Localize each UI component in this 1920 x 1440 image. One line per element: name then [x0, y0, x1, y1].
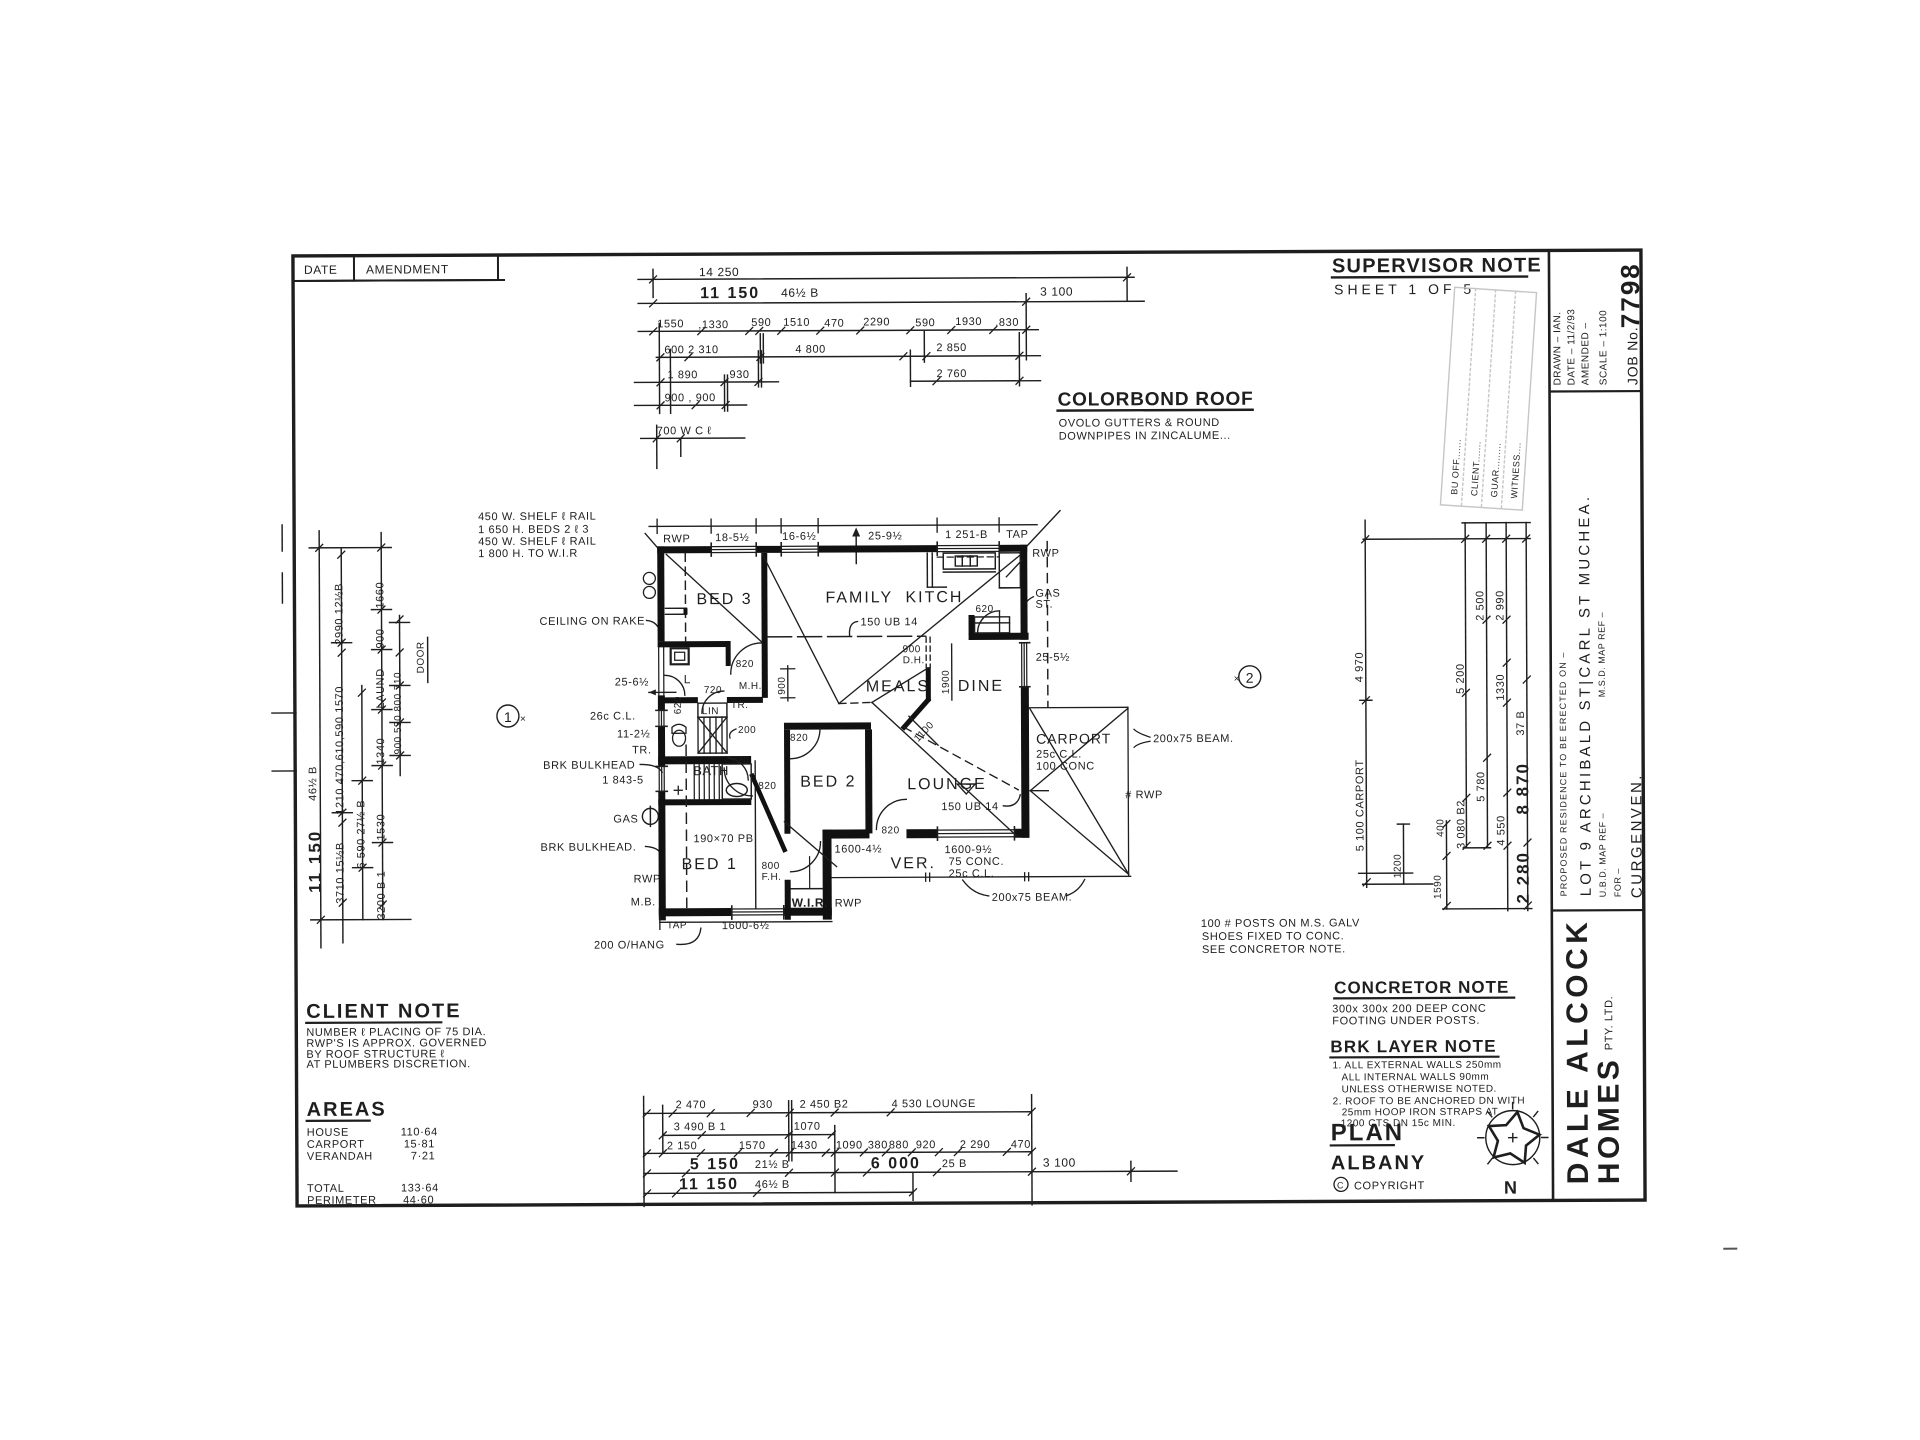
svg-text:LOT 9 ARCHIBALD ST|CARL ST M: LOT 9 ARCHIBALD ST|CARL ST MUCHEA. — [1576, 494, 1595, 897]
svg-text:2 150: 2 150 — [667, 1140, 698, 1152]
svg-text:1590: 1590 — [1433, 875, 1444, 899]
svg-text:1430: 1430 — [791, 1140, 818, 1152]
svg-text:DINE: DINE — [958, 678, 1004, 695]
svg-text:3 080 B2: 3 080 B2 — [1455, 800, 1467, 849]
svg-text:200x75 BEAM.: 200x75 BEAM. — [992, 892, 1073, 904]
svg-text:3200 B 1: 3200 B 1 — [376, 871, 388, 920]
svg-text:25c C.L.: 25c C.L. — [1036, 749, 1082, 761]
svg-text:D.H.: D.H. — [903, 655, 925, 666]
svg-text:PTY. LTD.: PTY. LTD. — [1603, 996, 1615, 1051]
svg-text:2 850: 2 850 — [936, 342, 967, 354]
svg-text:2 280: 2 280 — [1514, 851, 1533, 904]
svg-text:25c C.L.: 25c C.L. — [949, 868, 995, 880]
svg-text:5 780: 5 780 — [1475, 771, 1487, 802]
svg-text:2 500: 2 500 — [1474, 590, 1486, 621]
svg-text:GAS: GAS — [613, 813, 638, 825]
svg-text:BRK BULKHEAD: BRK BULKHEAD — [543, 759, 635, 771]
svg-text:930: 930 — [753, 1099, 773, 1111]
svg-text:×: × — [520, 714, 526, 725]
svg-text:5 150: 5 150 — [690, 1156, 740, 1173]
svg-text:11 150: 11 150 — [305, 830, 324, 893]
svg-text:ST.: ST. — [1035, 599, 1053, 611]
svg-text:16-6½: 16-6½ — [782, 531, 816, 543]
svg-text:2 470: 2 470 — [676, 1099, 707, 1111]
svg-text:2 450 B2: 2 450 B2 — [800, 1099, 849, 1111]
svg-text:JOB No.: JOB No. — [1624, 327, 1640, 386]
svg-text:900 , 900: 900 , 900 — [665, 392, 716, 404]
svg-text:HOUSE: HOUSE — [307, 1127, 349, 1139]
svg-text:TAP: TAP — [1006, 529, 1028, 541]
svg-text:RWP: RWP — [634, 873, 661, 885]
svg-text:SCALE – 1:100: SCALE – 1:100 — [1598, 310, 1609, 385]
svg-text:CLIENT NOTE: CLIENT NOTE — [306, 1000, 461, 1023]
svg-text:KITCH: KITCH — [905, 589, 963, 606]
svg-text:1530: 1530 — [375, 814, 387, 841]
svg-text:100 # POSTS ON M.S. GALV: 100 # POSTS ON M.S. GALV — [1201, 917, 1360, 930]
svg-text:26c C.L.: 26c C.L. — [590, 710, 636, 722]
svg-text:900: 900 — [777, 677, 788, 695]
svg-text:44·60: 44·60 — [403, 1194, 434, 1206]
svg-text:SUPERVISOR NOTE: SUPERVISOR NOTE — [1332, 254, 1542, 277]
svg-text:1900: 1900 — [941, 670, 952, 694]
svg-text:BRK LAYER NOTE: BRK LAYER NOTE — [1330, 1037, 1496, 1057]
svg-text:1340: 1340 — [375, 738, 387, 765]
svg-text:CONCRETOR NOTE: CONCRETOR NOTE — [1334, 978, 1509, 998]
svg-text:1070: 1070 — [794, 1121, 821, 1133]
svg-text:4 530 LOUNGE: 4 530 LOUNGE — [892, 1098, 976, 1110]
svg-text:1 890: 1 890 — [667, 369, 698, 381]
svg-text:SEE CONCRETOR NOTE.: SEE CONCRETOR NOTE. — [1202, 943, 1346, 956]
svg-text:800: 800 — [762, 861, 780, 872]
svg-text:1510: 1510 — [783, 317, 810, 329]
svg-text:1600-6½: 1600-6½ — [722, 920, 770, 932]
svg-text:,830: ,830 — [995, 317, 1019, 329]
svg-text:AREAS: AREAS — [307, 1099, 387, 1121]
svg-text:1 650 H. BEDS 2 ℓ 3: 1 650 H. BEDS 2 ℓ 3 — [478, 524, 589, 536]
svg-text:COPYRIGHT: COPYRIGHT — [1354, 1180, 1425, 1192]
svg-text:×: × — [1234, 674, 1240, 685]
svg-text:BED 2: BED 2 — [800, 773, 856, 790]
svg-text:TAP: TAP — [667, 920, 687, 931]
svg-text:N: N — [1504, 1178, 1518, 1198]
svg-text:6 590 27½ B: 6 590 27½ B — [355, 800, 367, 869]
svg-text:720: 720 — [731, 755, 749, 766]
svg-text:1: 1 — [504, 709, 513, 725]
svg-text:25-6½: 25-6½ — [615, 676, 649, 688]
svg-text:820: 820 — [736, 659, 754, 670]
svg-text:150 UB 14: 150 UB 14 — [861, 616, 918, 628]
svg-text:CURGENVEN.: CURGENVEN. — [1628, 773, 1646, 898]
svg-text:880: 880 — [889, 1139, 909, 1151]
svg-text:L: L — [684, 672, 691, 686]
svg-text:2: 2 — [1246, 670, 1255, 686]
svg-text:PLAN: PLAN — [1331, 1119, 1404, 1146]
svg-text:PERIMETER: PERIMETER — [307, 1195, 377, 1207]
svg-text:FOR –: FOR – — [1613, 868, 1623, 897]
svg-text:1 800 H. TO W.I.R: 1 800 H. TO W.I.R — [478, 548, 578, 560]
svg-text:200 O/HANG: 200 O/HANG — [594, 939, 665, 951]
svg-text:SHOES FIXED TO CONC.: SHOES FIXED TO CONC. — [1202, 930, 1344, 943]
svg-text:3 100: 3 100 — [1043, 1156, 1076, 1170]
svg-text:F.H.: F.H. — [762, 872, 782, 883]
svg-text:620: 620 — [673, 696, 684, 714]
svg-text:RWP: RWP — [835, 897, 862, 909]
svg-text:450 W. SHELF ℓ RAIL: 450 W. SHELF ℓ RAIL — [478, 511, 596, 524]
svg-text:DALE ALCOCK: DALE ALCOCK — [1561, 918, 1595, 1185]
svg-text:M.S.D. MAP REF –: M.S.D. MAP REF – — [1596, 612, 1606, 697]
svg-text:1570: 1570 — [739, 1140, 766, 1152]
svg-text:7·21: 7·21 — [411, 1150, 435, 1162]
svg-text:380: 380 — [868, 1139, 888, 1151]
svg-text:2. ROOF TO BE ANCHORED DN WITH: 2. ROOF TO BE ANCHORED DN WITH — [1333, 1096, 1525, 1108]
svg-text:590: 590 — [751, 317, 771, 329]
svg-text:BRK BULKHEAD.: BRK BULKHEAD. — [540, 841, 636, 853]
svg-text:UNLESS OTHERWISE NOTED.: UNLESS OTHERWISE NOTED. — [1342, 1084, 1497, 1096]
svg-text:46½ B: 46½ B — [781, 286, 819, 300]
svg-text:4 550: 4 550 — [1495, 815, 1507, 846]
svg-text:DOWNPIPES IN ZINCALUME...: DOWNPIPES IN ZINCALUME... — [1059, 430, 1231, 443]
svg-text:CARPORT: CARPORT — [307, 1139, 365, 1151]
svg-text:1 251-B: 1 251-B — [945, 529, 988, 541]
svg-text:5 200: 5 200 — [1455, 663, 1467, 694]
svg-text:25mm HOOP IRON STRAPS AT: 25mm HOOP IRON STRAPS AT — [1342, 1107, 1499, 1119]
svg-text:TR.: TR. — [632, 744, 652, 756]
svg-text:FOOTING UNDER POSTS.: FOOTING UNDER POSTS. — [1332, 1015, 1480, 1028]
svg-text:11 150: 11 150 — [700, 285, 760, 302]
svg-text:2 290: 2 290 — [960, 1139, 991, 1151]
svg-text:46½ B: 46½ B — [755, 1179, 790, 1191]
svg-text:3 490 B 1: 3 490 B 1 — [674, 1121, 727, 1133]
svg-text:190×70 PB: 190×70 PB — [693, 833, 753, 845]
svg-text:BATH: BATH — [693, 763, 729, 778]
svg-text:5 100 CARPORT: 5 100 CARPORT — [1354, 759, 1366, 851]
svg-text:820: 820 — [790, 733, 808, 744]
svg-text:1930: 1930 — [955, 316, 982, 328]
svg-text:1550: 1550 — [657, 318, 684, 330]
svg-text:TR.: TR. — [731, 700, 749, 711]
svg-text:300x 300x 200 DEEP CONC: 300x 300x 200 DEEP CONC — [1332, 1003, 1486, 1016]
svg-text:25 B: 25 B — [942, 1158, 967, 1170]
svg-text:U.B.D. MAP REF –: U.B.D. MAP REF – — [1597, 813, 1607, 897]
svg-text:2990 12½B: 2990 12½B — [333, 583, 345, 645]
svg-text:3 100: 3 100 — [1040, 285, 1073, 299]
svg-text:75 CONC.: 75 CONC. — [949, 856, 1005, 868]
svg-text:25-9½: 25-9½ — [868, 530, 902, 542]
svg-text:LIN: LIN — [702, 706, 719, 717]
svg-text:7798: 7798 — [1615, 262, 1645, 328]
svg-text:MEALS: MEALS — [866, 678, 930, 695]
svg-text:470: 470 — [824, 318, 844, 330]
svg-text:DATE: DATE — [304, 263, 338, 277]
svg-text:ALL INTERNAL WALLS 90mm: ALL INTERNAL WALLS 90mm — [1342, 1072, 1490, 1084]
svg-text:BED 3: BED 3 — [696, 591, 752, 608]
svg-text:150 UB 14: 150 UB 14 — [941, 801, 998, 813]
svg-text:6 000: 6 000 — [871, 1155, 921, 1172]
svg-text:ALBANY: ALBANY — [1331, 1152, 1426, 1174]
svg-text:DATE – 11/2/93: DATE – 11/2/93 — [1566, 309, 1577, 386]
svg-text:W.I.R.: W.I.R. — [792, 896, 828, 910]
svg-text:900: 900 — [903, 644, 921, 655]
svg-text:M.H.: M.H. — [739, 681, 762, 692]
svg-text:590: 590 — [915, 317, 935, 329]
svg-text:820: 820 — [881, 825, 899, 836]
svg-text:200x75 BEAM.: 200x75 BEAM. — [1153, 733, 1234, 745]
svg-text:1 843-5: 1 843-5 — [602, 774, 644, 786]
svg-text:PROPOSED RESIDENCE TO BE ERECT: PROPOSED RESIDENCE TO BE ERECTED ON – — [1558, 651, 1569, 896]
svg-text:133·64: 133·64 — [401, 1182, 439, 1194]
svg-text:1090: 1090 — [836, 1139, 863, 1151]
svg-text:HOMES: HOMES — [1592, 1057, 1626, 1185]
svg-text:21½ B: 21½ B — [755, 1159, 790, 1171]
svg-text:AT PLUMBERS DISCRETION.: AT PLUMBERS DISCRETION. — [306, 1058, 470, 1071]
svg-text:VERANDAH: VERANDAH — [307, 1151, 373, 1163]
svg-text:3710 15½B: 3710 15½B — [334, 842, 346, 904]
svg-text:LAUND: LAUND — [375, 668, 387, 708]
svg-text:AMENDED –: AMENDED – — [1580, 322, 1591, 385]
svg-text:1600-9½: 1600-9½ — [945, 844, 993, 856]
svg-text:37 B: 37 B — [1515, 711, 1527, 736]
svg-text:920: 920 — [916, 1139, 936, 1151]
svg-text:18-5½: 18-5½ — [715, 532, 749, 544]
svg-text:COLORBOND ROOF: COLORBOND ROOF — [1058, 389, 1254, 411]
svg-text:4 970: 4 970 — [1354, 652, 1366, 683]
svg-text:820: 820 — [758, 781, 776, 792]
svg-text:2 760: 2 760 — [936, 368, 967, 380]
svg-text:1. ALL EXTERNAL WALLS 250mm: 1. ALL EXTERNAL WALLS 250mm — [1332, 1060, 1501, 1072]
svg-text:1200: 1200 — [1393, 854, 1404, 878]
svg-text:450 W. SHELF ℓ RAIL: 450 W. SHELF ℓ RAIL — [478, 536, 596, 549]
svg-text:4 800: 4 800 — [795, 344, 826, 356]
svg-text:VER.: VER. — [891, 855, 936, 872]
svg-text:CEILING ON RAKE: CEILING ON RAKE — [540, 615, 646, 627]
svg-text:C: C — [1337, 1180, 1344, 1190]
svg-text:900 530 800 710: 900 530 800 710 — [393, 672, 404, 755]
svg-text:100 CONC: 100 CONC — [1036, 760, 1095, 772]
svg-text:14 250: 14 250 — [699, 265, 739, 279]
svg-text:RWP: RWP — [1032, 548, 1059, 560]
svg-text:1330: 1330 — [1495, 674, 1507, 701]
svg-text:620: 620 — [975, 604, 993, 615]
svg-text:OVOLO GUTTERS & ROUND: OVOLO GUTTERS & ROUND — [1059, 417, 1220, 430]
svg-text:AMENDMENT: AMENDMENT — [366, 262, 449, 276]
svg-text:930: 930 — [729, 369, 749, 381]
svg-text:1600-4½: 1600-4½ — [835, 843, 883, 855]
svg-text:46½ B: 46½ B — [307, 766, 319, 801]
svg-text:FAMILY: FAMILY — [825, 589, 893, 606]
svg-text:# RWP: # RWP — [1125, 789, 1163, 801]
svg-text:DOOR: DOOR — [416, 641, 427, 673]
svg-text:2290: 2290 — [863, 316, 890, 328]
svg-text:470: 470 — [1011, 1139, 1031, 1151]
svg-text:BED 1: BED 1 — [682, 856, 738, 873]
svg-text:RWP: RWP — [663, 533, 690, 545]
svg-text:1660: 1660 — [374, 582, 386, 609]
svg-text:8 870: 8 870 — [1513, 762, 1532, 815]
svg-text:1210 470,610,590 1570: 1210 470,610,590 1570 — [334, 686, 347, 815]
svg-text:25-5½: 25-5½ — [1036, 652, 1070, 664]
svg-text:110·64: 110·64 — [401, 1126, 438, 1138]
svg-text:DRAWN – IAN.: DRAWN – IAN. — [1552, 311, 1563, 385]
svg-text:11-2½: 11-2½ — [617, 728, 650, 740]
svg-text:11 150: 11 150 — [679, 1176, 739, 1193]
svg-text:400: 400 — [1435, 819, 1446, 837]
svg-text:M.B.: M.B. — [631, 896, 656, 908]
svg-text:200: 200 — [738, 725, 756, 736]
svg-text:TOTAL: TOTAL — [307, 1183, 344, 1195]
svg-text:2 990: 2 990 — [1494, 590, 1506, 621]
svg-text:15·81: 15·81 — [404, 1138, 435, 1150]
